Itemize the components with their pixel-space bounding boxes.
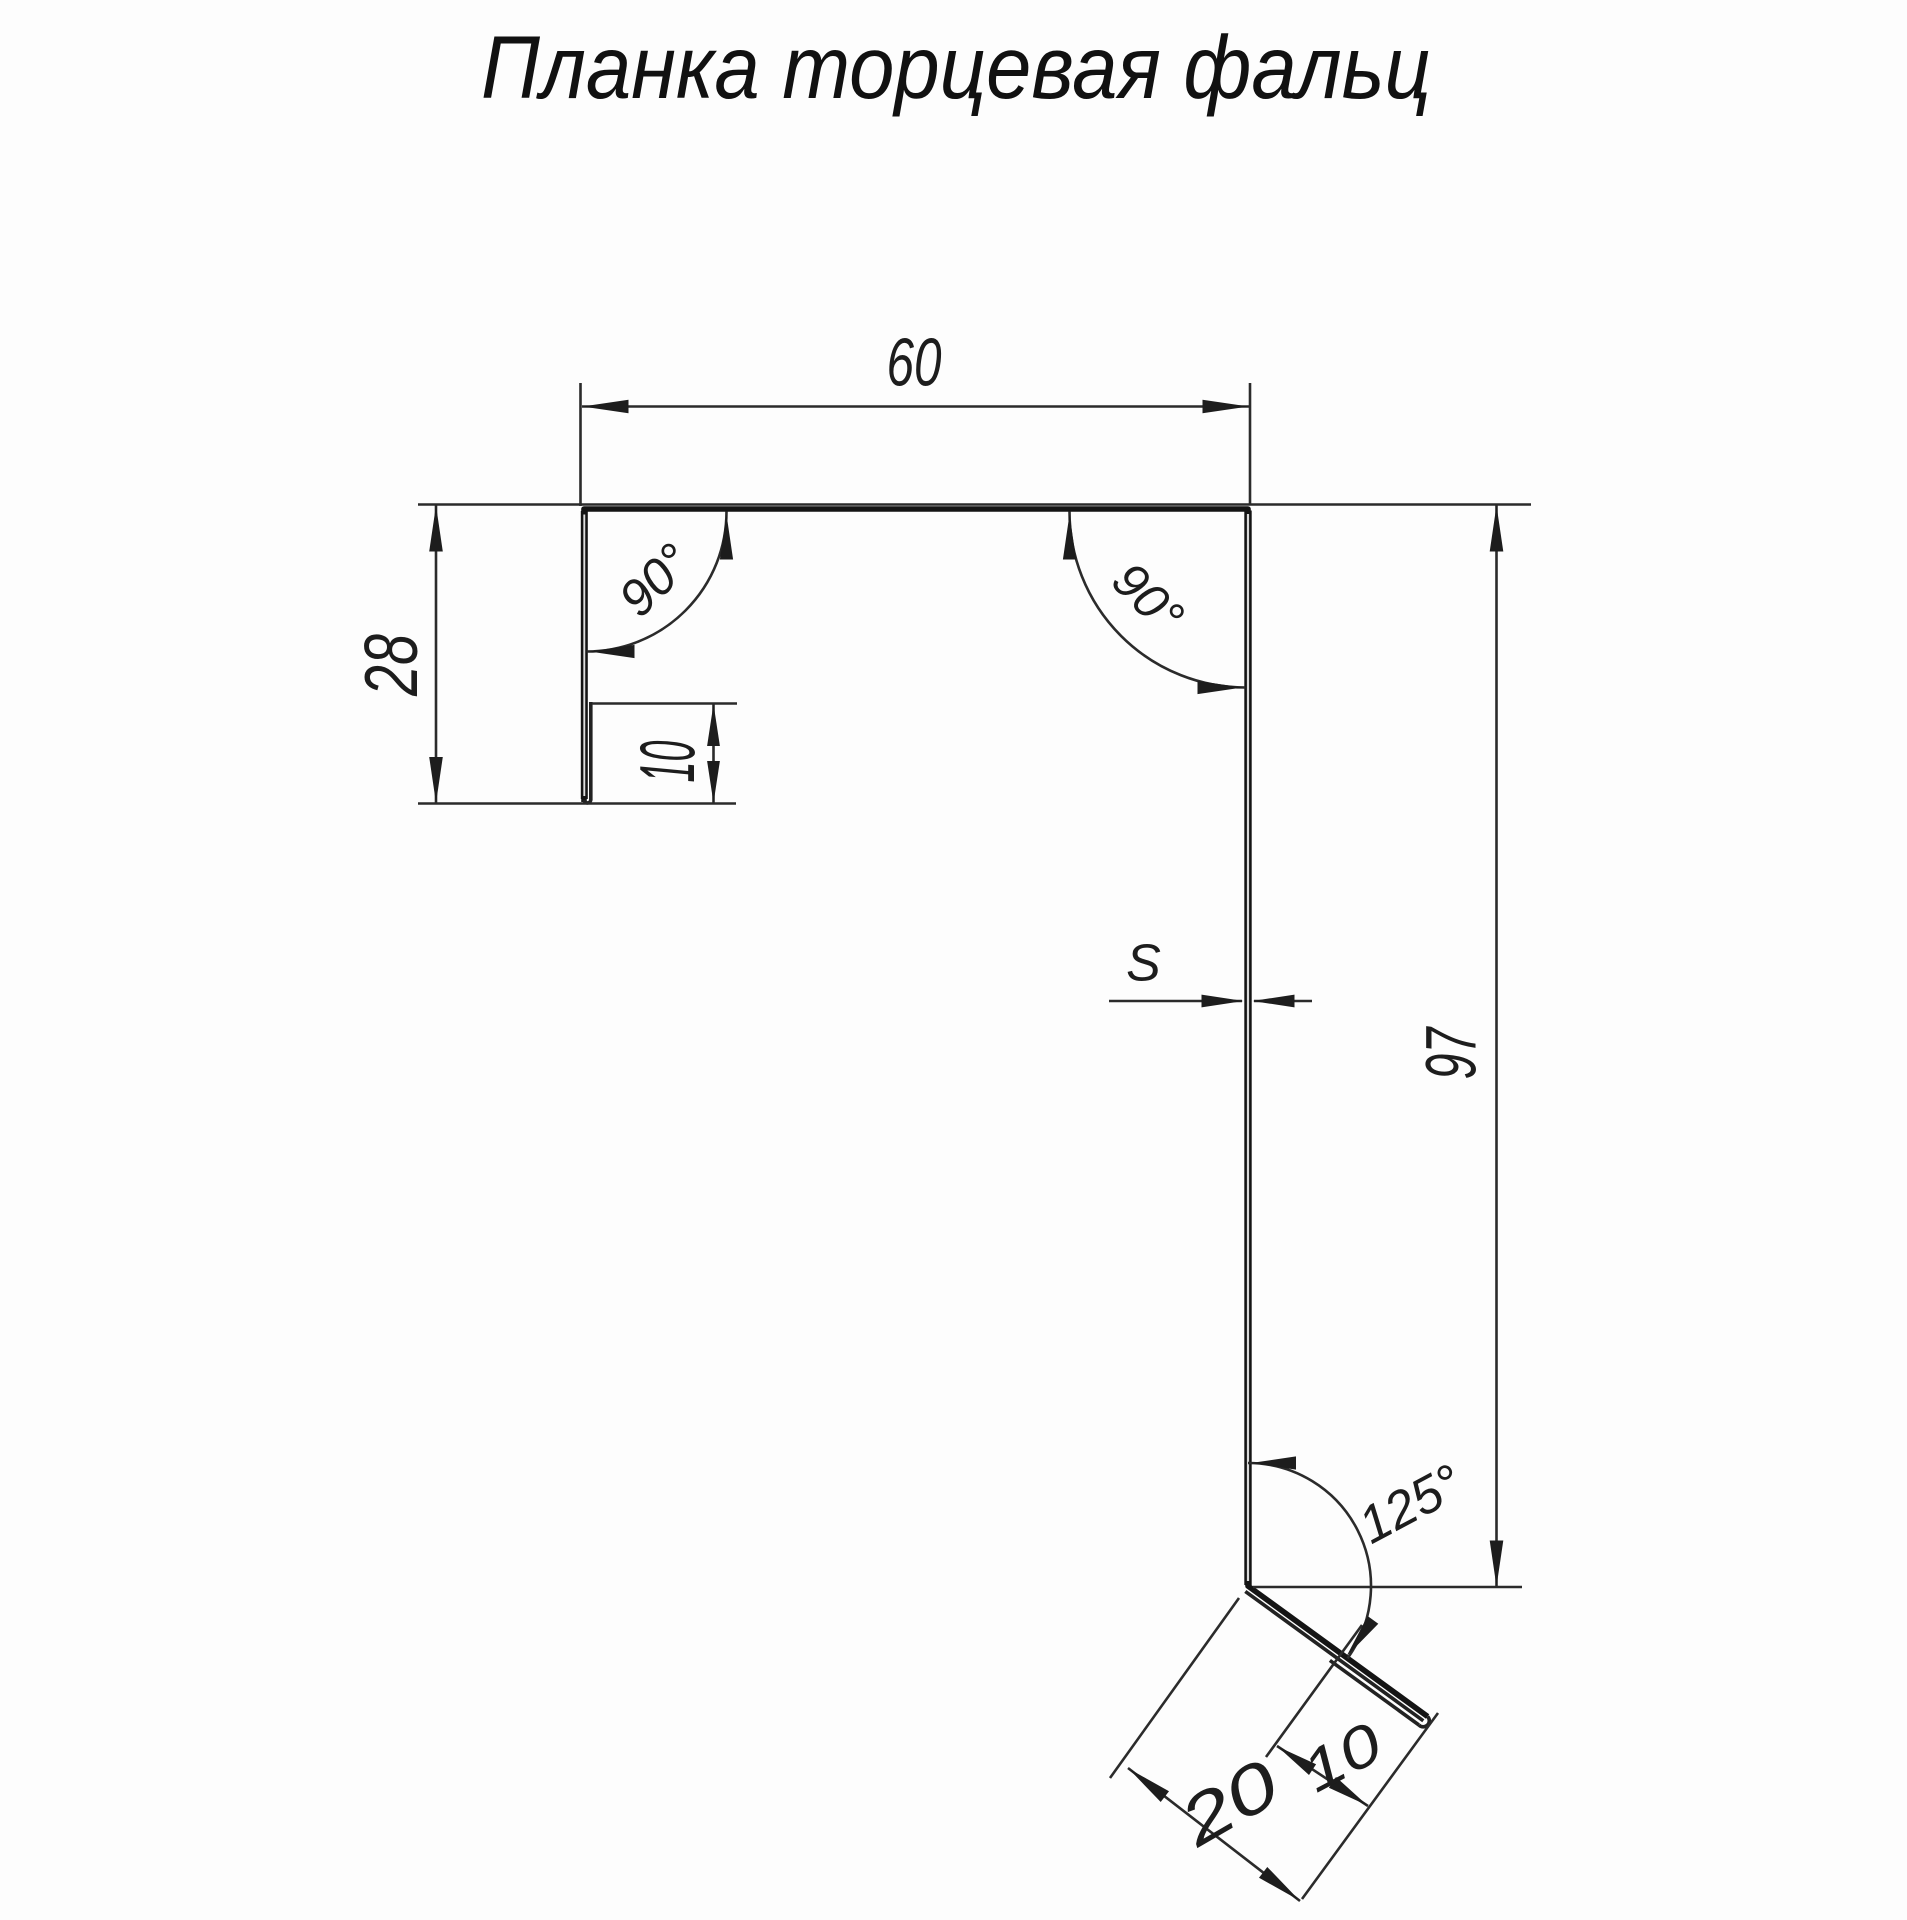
svg-text:97: 97 — [1413, 1026, 1492, 1080]
svg-text:60: 60 — [887, 325, 942, 401]
svg-text:Планка торцевая фальц: Планка торцевая фальц — [481, 17, 1431, 117]
svg-text:S: S — [1126, 935, 1161, 993]
svg-text:10: 10 — [623, 741, 711, 783]
svg-text:28: 28 — [349, 634, 433, 697]
